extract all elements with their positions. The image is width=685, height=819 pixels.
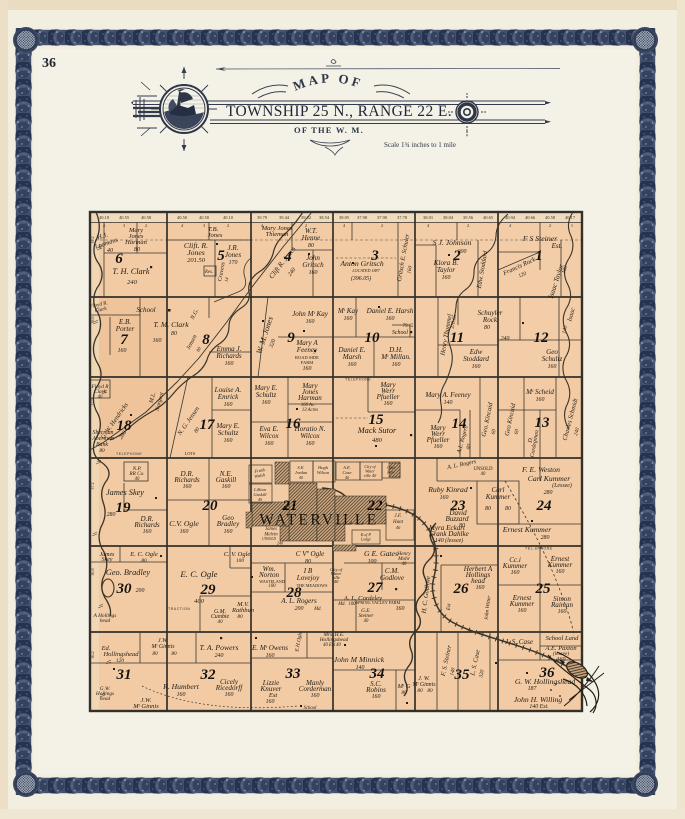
- svg-text:Res.: Res.: [204, 270, 213, 275]
- svg-text:Taylor: Taylor: [437, 266, 456, 274]
- svg-text:25: 25: [535, 581, 552, 597]
- svg-text:Pfueller: Pfueller: [376, 393, 400, 401]
- svg-text:40: 40: [258, 497, 262, 502]
- svg-text:33: 33: [285, 666, 302, 682]
- svg-text:11: 11: [450, 330, 464, 346]
- svg-text:Gritsch: Gritsch: [302, 261, 324, 269]
- svg-text:80: 80: [484, 325, 490, 331]
- svg-text:Jones: Jones: [225, 251, 241, 259]
- svg-text:40.55: 40.55: [119, 215, 130, 220]
- svg-text:Emrick: Emrick: [217, 393, 239, 401]
- svg-text:C.V. Ogle: C.V. Ogle: [169, 519, 199, 528]
- svg-text:Burr: Burr: [387, 470, 395, 475]
- svg-text:37.98: 37.98: [357, 215, 368, 220]
- svg-text:Anton Gritsch: Anton Gritsch: [339, 259, 384, 268]
- svg-text:160: 160: [372, 694, 381, 700]
- svg-text:6: 6: [115, 251, 123, 267]
- svg-text:40.65: 40.65: [483, 215, 494, 220]
- svg-text:200: 200: [136, 588, 145, 594]
- svg-text:160: 160: [153, 338, 162, 344]
- svg-text:160: 160: [556, 569, 565, 575]
- svg-text:Jones: Jones: [208, 232, 223, 239]
- svg-text:John M⁢ Minnick: John M⁢ Minnick: [334, 655, 385, 664]
- svg-text:A. L. Rogers: A. L. Rogers: [280, 597, 317, 605]
- svg-text:160: 160: [306, 441, 315, 447]
- svg-text:100: 100: [268, 584, 276, 589]
- svg-text:Ernest Kummer: Ernest Kummer: [502, 525, 552, 534]
- svg-text:27: 27: [367, 580, 384, 596]
- svg-text:Kummer: Kummer: [509, 600, 535, 608]
- svg-text:James: James: [265, 527, 277, 532]
- svg-text:160: 160: [386, 316, 395, 322]
- svg-text:Carl Kummer: Carl Kummer: [528, 474, 572, 483]
- svg-text:Buzzard: Buzzard: [446, 515, 469, 523]
- svg-text:160: 160: [266, 653, 275, 659]
- svg-text:160: 160: [306, 319, 315, 325]
- svg-text:160: 160: [183, 484, 192, 490]
- svg-text:40.58: 40.58: [141, 215, 152, 220]
- svg-text:38.04: 38.04: [443, 215, 454, 220]
- svg-text:10: 10: [365, 330, 381, 346]
- svg-text:160: 160: [180, 529, 189, 535]
- svg-text:160: 160: [348, 362, 357, 368]
- svg-text:40.66: 40.66: [525, 215, 536, 220]
- svg-text:40.58: 40.58: [545, 215, 556, 220]
- svg-text:Thieman: Thieman: [266, 231, 289, 238]
- svg-text:38.05: 38.05: [339, 215, 350, 220]
- svg-text:160: 160: [476, 585, 485, 591]
- svg-text:480: 480: [372, 437, 383, 444]
- svg-text:(Lessee): (Lessee): [552, 482, 572, 489]
- svg-text:LOCATED 1887: LOCATED 1887: [351, 268, 380, 273]
- svg-text:80: 80: [505, 506, 511, 512]
- svg-text:79.15: 79.15: [403, 324, 414, 329]
- svg-text:Bradley: Bradley: [217, 520, 240, 528]
- svg-text:G. W. Hollingshead: G. W. Hollingshead: [515, 677, 576, 686]
- svg-text:Scale 1¾ inches to 1 mile: Scale 1¾ inches to 1 mile: [384, 141, 456, 149]
- svg-text:OF THE W. M.: OF THE W. M.: [294, 125, 364, 135]
- svg-text:40: 40: [402, 562, 407, 567]
- svg-text:80: 80: [237, 614, 243, 620]
- svg-text:160: 160: [557, 657, 566, 663]
- svg-text:240: 240: [277, 541, 283, 546]
- svg-text:J.F.: J.F.: [394, 514, 401, 519]
- svg-text:140: 140: [356, 665, 365, 671]
- svg-text:100: 100: [368, 559, 377, 565]
- svg-text:1: 1: [571, 223, 573, 228]
- svg-text:Kummer: Kummer: [485, 493, 511, 501]
- svg-text:Richards: Richards: [133, 521, 160, 529]
- svg-text:Wilcox: Wilcox: [259, 432, 279, 440]
- svg-text:Est: Est: [268, 692, 278, 699]
- svg-text:160: 160: [225, 361, 234, 367]
- svg-text:Hollingshead: Hollingshead: [102, 651, 139, 658]
- svg-text:Stoddard: Stoddard: [463, 355, 489, 363]
- svg-text:Est: Est: [445, 603, 452, 612]
- svg-text:160: 160: [224, 438, 233, 444]
- svg-text:John M⁢ᵗ Kay: John M⁢ᵗ Kay: [292, 310, 329, 318]
- svg-text:C. V. Ogle: C. V. Ogle: [224, 551, 251, 558]
- svg-text:187: 187: [528, 686, 538, 692]
- svg-text:240: 240: [501, 336, 510, 342]
- svg-text:160: 160: [224, 402, 233, 408]
- svg-text:17: 17: [200, 417, 216, 433]
- svg-text:Corderman: Corderman: [299, 685, 332, 693]
- svg-text:100: 100: [236, 558, 244, 564]
- svg-text:160: 160: [434, 444, 443, 450]
- svg-text:40: 40: [217, 619, 223, 625]
- svg-text:37.90: 37.90: [377, 215, 388, 220]
- svg-text:Md.: Md.: [337, 602, 345, 607]
- svg-text:160: 160: [442, 275, 451, 281]
- svg-text:head: head: [100, 618, 111, 624]
- svg-text:160: 160: [536, 397, 545, 403]
- svg-text:T. A. Powers: T. A. Powers: [199, 643, 238, 652]
- svg-text:Frank Dahlke: Frank Dahlke: [428, 530, 469, 538]
- svg-text:40: 40: [98, 395, 103, 400]
- svg-text:E. C. Ogle: E. C. Ogle: [179, 569, 217, 579]
- svg-text:2: 2: [467, 223, 469, 228]
- svg-text:80: 80: [305, 559, 311, 565]
- svg-text:Md.: Md.: [313, 607, 321, 612]
- svg-text:F. E. Weston: F. E. Weston: [521, 465, 560, 474]
- svg-text:Skey: Skey: [102, 557, 113, 563]
- svg-text:280: 280: [544, 490, 553, 496]
- svg-text:80: 80: [141, 558, 147, 564]
- svg-text:head: head: [100, 696, 111, 702]
- svg-text:160: 160: [440, 495, 449, 501]
- svg-text:38.01: 38.01: [423, 215, 433, 220]
- svg-text:36.8: 36.8: [90, 568, 95, 575]
- svg-text:School Land: School Land: [546, 635, 579, 642]
- svg-text:FARM: FARM: [301, 360, 313, 365]
- svg-text:9: 9: [287, 330, 295, 346]
- svg-text:26: 26: [453, 581, 470, 597]
- svg-text:80: 80: [134, 247, 140, 253]
- svg-text:4: 4: [283, 249, 292, 265]
- svg-text:12: 12: [534, 330, 550, 346]
- svg-text:39.02: 39.02: [301, 215, 311, 220]
- svg-text:80: 80: [171, 331, 177, 337]
- svg-text:19: 19: [116, 500, 132, 516]
- svg-text:Kummer: Kummer: [502, 562, 528, 570]
- svg-text:39.44: 39.44: [279, 215, 290, 220]
- svg-text:80: 80: [427, 688, 433, 694]
- svg-text:R. Humbert: R. Humbert: [162, 682, 200, 691]
- svg-text:80: 80: [308, 243, 314, 249]
- svg-text:7: 7: [120, 332, 128, 348]
- svg-text:13 Acres: 13 Acres: [302, 408, 318, 413]
- svg-text:140 Est.: 140 Est.: [529, 704, 548, 710]
- svg-text:140 (lessee): 140 (lessee): [435, 537, 463, 544]
- svg-text:ville 40: ville 40: [364, 473, 377, 478]
- svg-text:8: 8: [202, 332, 210, 348]
- svg-text:40: 40: [364, 619, 369, 624]
- svg-text:Robins: Robins: [365, 686, 386, 694]
- svg-text:140: 140: [444, 400, 453, 406]
- svg-text:LOTS: LOTS: [185, 451, 196, 456]
- svg-text:Richards: Richards: [215, 352, 242, 360]
- svg-text:160: 160: [222, 484, 231, 490]
- svg-text:1: 1: [535, 248, 543, 264]
- svg-text:J. S. Case: J. S. Case: [505, 638, 533, 646]
- svg-text:160: 160: [311, 693, 320, 699]
- svg-text:Ruby Kinrad: Ruby Kinrad: [427, 485, 468, 494]
- svg-text:80: 80: [171, 651, 177, 657]
- svg-text:Lodge: Lodge: [360, 537, 371, 542]
- svg-text:E. Mᵗ Owens: E. Mᵗ Owens: [251, 644, 288, 652]
- svg-text:80: 80: [401, 690, 407, 696]
- svg-text:School: School: [304, 706, 317, 711]
- svg-text:John H. Willing: John H. Willing: [514, 695, 563, 704]
- svg-text:40: 40: [396, 525, 401, 530]
- svg-text:Rathbun: Rathbun: [231, 607, 254, 614]
- svg-text:37.2: 37.2: [90, 482, 95, 489]
- svg-text:20: 20: [202, 498, 219, 514]
- svg-text:160: 160: [392, 362, 401, 368]
- svg-text:Marsh: Marsh: [342, 353, 362, 361]
- svg-text:Mary A. Feeney: Mary A. Feeney: [424, 391, 471, 399]
- svg-text:Mᵗ Kay: Mᵗ Kay: [337, 307, 359, 315]
- svg-text:240: 240: [127, 279, 138, 286]
- svg-text:160: 160: [118, 348, 127, 354]
- svg-text:80: 80: [99, 448, 105, 454]
- svg-text:TEL.&PHONE: TEL.&PHONE: [525, 547, 553, 551]
- svg-text:37.78: 37.78: [397, 215, 408, 220]
- svg-text:Geo. Bradley: Geo. Bradley: [106, 568, 151, 577]
- svg-text:32: 32: [200, 667, 217, 683]
- svg-text:Mᵗ Millan.: Mᵗ Millan.: [380, 353, 411, 361]
- svg-text:Mᵗ Ginnis: Mᵗ Ginnis: [132, 703, 159, 710]
- svg-text:2: 2: [145, 223, 147, 228]
- svg-text:2: 2: [381, 223, 383, 228]
- svg-text:Mack Sutor: Mack Sutor: [357, 426, 397, 435]
- svg-text:head: head: [471, 577, 485, 585]
- svg-text:C Vº Ogle: C Vº Ogle: [296, 550, 325, 558]
- svg-text:36: 36: [42, 56, 56, 71]
- svg-text:Norton: Norton: [258, 571, 280, 579]
- svg-text:Rock: Rock: [482, 316, 498, 324]
- svg-text:200: 200: [295, 606, 304, 612]
- svg-text:School: School: [136, 306, 155, 314]
- svg-text:T. M. Clark: T. M. Clark: [153, 320, 189, 329]
- svg-text:G E. Gates: G E. Gates: [364, 549, 398, 558]
- svg-text:Lovejoy: Lovejoy: [296, 574, 320, 582]
- svg-text:Schultz: Schultz: [256, 391, 277, 399]
- svg-text:40.17: 40.17: [565, 215, 576, 220]
- svg-text:24: 24: [536, 498, 553, 514]
- svg-text:30: 30: [116, 581, 133, 597]
- svg-text:S J. Johnson: S J. Johnson: [433, 238, 472, 247]
- svg-text:TELEPHONE: TELEPHONE: [345, 378, 371, 382]
- svg-text:UNSOLD: UNSOLD: [262, 537, 276, 541]
- svg-text:Kummer: Kummer: [547, 561, 573, 569]
- svg-text:Schultz: Schultz: [542, 355, 563, 363]
- svg-text:39.2: 39.2: [90, 236, 95, 243]
- svg-text:160: 160: [225, 692, 234, 698]
- svg-text:170: 170: [229, 260, 238, 266]
- svg-text:21: 21: [282, 498, 298, 514]
- svg-text:40: 40: [345, 475, 349, 480]
- svg-text:School: School: [392, 330, 408, 336]
- svg-text:Est.: Est.: [551, 242, 563, 250]
- svg-text:Wilson: Wilson: [317, 470, 330, 475]
- svg-text:40: 40: [135, 477, 140, 482]
- svg-text:Schultz: Schultz: [218, 429, 239, 437]
- svg-text:160: 160: [262, 400, 271, 406]
- svg-text:38.6: 38.6: [90, 316, 95, 323]
- svg-text:2: 2: [549, 223, 551, 228]
- svg-text:40 Est 40: 40 Est 40: [323, 643, 341, 648]
- svg-text:160: 160: [511, 570, 520, 576]
- svg-text:160: 160: [344, 316, 353, 322]
- svg-text:240: 240: [215, 653, 224, 659]
- svg-text:TOWNSHIP 25 N., RANGE 22 E.: TOWNSHIP 25 N., RANGE 22 E.: [226, 103, 452, 120]
- svg-text:TRACTION: TRACTION: [168, 607, 190, 611]
- svg-text:39.56: 39.56: [463, 215, 474, 220]
- svg-text:160: 160: [303, 366, 312, 372]
- svg-text:SPRING VALLEY FARM: SPRING VALLEY FARM: [356, 600, 401, 605]
- svg-text:400: 400: [194, 598, 205, 605]
- svg-text:40.10: 40.10: [223, 215, 234, 220]
- svg-text:160: 160: [518, 608, 527, 614]
- svg-text:160: 160: [309, 270, 318, 276]
- svg-text:201.50: 201.50: [187, 257, 206, 264]
- svg-text:T. H. Clark: T. H. Clark: [112, 267, 150, 276]
- svg-text:120: 120: [116, 658, 124, 664]
- svg-text:80: 80: [485, 506, 491, 512]
- svg-text:280: 280: [107, 512, 116, 518]
- svg-text:40.50: 40.50: [199, 215, 210, 220]
- svg-text:(lessee): (lessee): [553, 650, 569, 657]
- svg-text:(396.05): (396.05): [351, 275, 371, 282]
- svg-text:80: 80: [417, 688, 423, 694]
- svg-text:40.50: 40.50: [177, 215, 188, 220]
- svg-text:Raiman: Raiman: [550, 601, 574, 609]
- svg-text:160: 160: [384, 401, 393, 407]
- svg-text:40.94: 40.94: [505, 215, 516, 220]
- svg-text:Richards: Richards: [173, 476, 200, 484]
- svg-text:280: 280: [541, 535, 550, 541]
- svg-text:E. C. Ogle: E. C. Ogle: [129, 551, 158, 558]
- svg-text:40: 40: [334, 579, 339, 584]
- svg-text:Henne: Henne: [301, 234, 321, 242]
- svg-text:29: 29: [200, 582, 217, 598]
- svg-text:40: 40: [299, 475, 303, 480]
- svg-text:160: 160: [558, 609, 567, 615]
- svg-text:31: 31: [116, 667, 132, 683]
- svg-text:5: 5: [217, 248, 225, 264]
- svg-text:Harman: Harman: [297, 394, 322, 402]
- svg-text:Daniel E. Harsh: Daniel E. Harsh: [366, 307, 414, 315]
- svg-text:Ricedorff: Ricedorff: [215, 684, 243, 692]
- svg-text:Mᵗ Ginnis: Mᵗ Ginnis: [150, 644, 175, 650]
- svg-text:2: 2: [227, 223, 229, 228]
- svg-text:Godlove: Godlove: [380, 574, 404, 582]
- svg-text:40: 40: [107, 248, 113, 254]
- svg-text:39.79: 39.79: [257, 215, 268, 220]
- svg-text:37.9: 37.9: [90, 398, 95, 405]
- svg-text:22: 22: [367, 498, 384, 514]
- svg-text:160: 160: [265, 441, 274, 447]
- svg-text:WATERVILLE: WATERVILLE: [259, 512, 378, 529]
- svg-text:38.54: 38.54: [319, 215, 330, 220]
- svg-text:Wilcox: Wilcox: [300, 432, 320, 440]
- svg-text:40.18: 40.18: [99, 215, 110, 220]
- svg-text:Mᵗ Scheid: Mᵗ Scheid: [525, 388, 554, 396]
- svg-text:160: 160: [177, 692, 186, 698]
- svg-text:160: 160: [396, 606, 405, 612]
- svg-text:James Skey: James Skey: [106, 488, 144, 497]
- svg-text:160: 160: [224, 529, 233, 535]
- svg-text:36.2: 36.2: [90, 651, 95, 658]
- svg-text:35: 35: [454, 667, 471, 683]
- svg-text:160: 160: [548, 364, 557, 370]
- svg-text:40: 40: [481, 472, 486, 477]
- svg-text:Harman: Harman: [124, 239, 147, 246]
- svg-text:160: 160: [143, 529, 152, 535]
- svg-text:Jones: Jones: [187, 248, 205, 257]
- svg-text:Gaskill: Gaskill: [216, 476, 237, 484]
- svg-text:160: 160: [266, 699, 275, 705]
- svg-text:Mᵗ G: Mᵗ G: [397, 683, 411, 690]
- svg-text:13: 13: [535, 415, 551, 431]
- svg-text:TELEPHONE: TELEPHONE: [116, 452, 142, 456]
- svg-text:Pfueller: Pfueller: [426, 436, 450, 444]
- svg-text:160: 160: [472, 364, 481, 370]
- svg-text:80: 80: [152, 651, 158, 657]
